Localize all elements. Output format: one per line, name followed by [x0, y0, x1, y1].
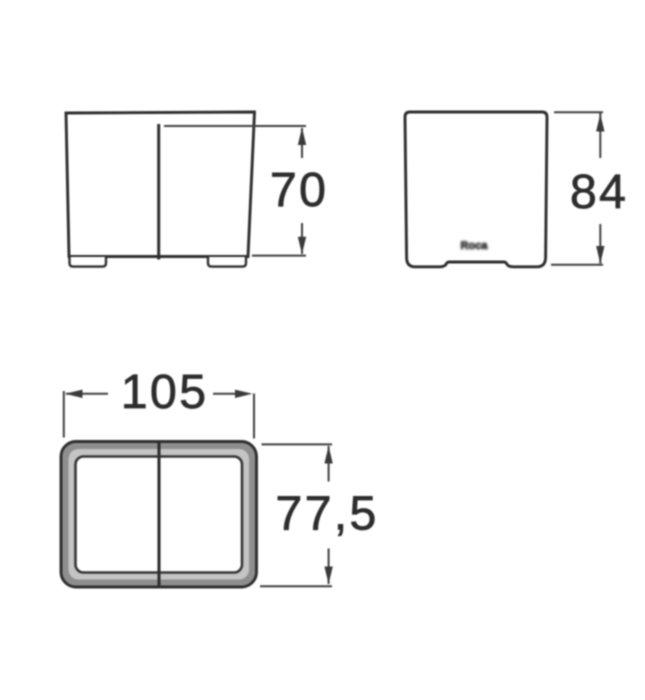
svg-text:105: 105 — [121, 365, 209, 419]
svg-text:84: 84 — [570, 165, 628, 219]
svg-text:70: 70 — [270, 163, 328, 217]
svg-text:77,5: 77,5 — [275, 487, 378, 541]
svg-text:Roca: Roca — [461, 240, 489, 252]
